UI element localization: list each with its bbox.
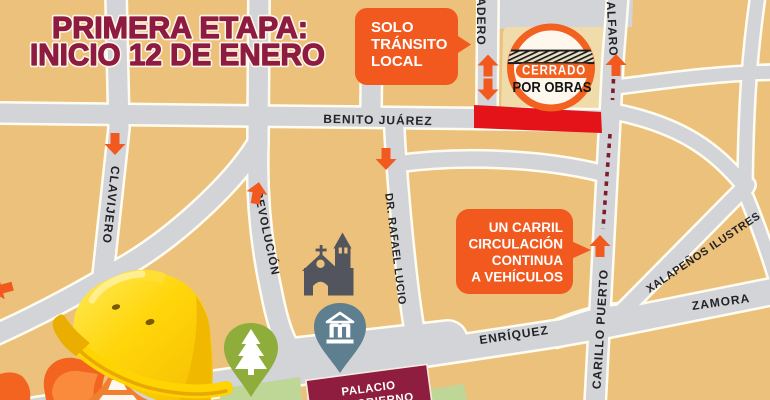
svg-text:LOCAL: LOCAL [371,53,423,70]
svg-text:CIRCULACIÓN: CIRCULACIÓN [469,237,564,252]
svg-text:A VEHÍCULOS: A VEHÍCULOS [471,270,563,285]
svg-text:MADERO: MADERO [474,0,488,46]
svg-text:TRÁNSITO: TRÁNSITO [371,36,448,53]
svg-text:ALFARO: ALFARO [604,1,621,57]
svg-text:SOLO: SOLO [371,19,414,36]
svg-text:POR OBRAS: POR OBRAS [513,79,592,96]
svg-text:BENITO JUÁREZ: BENITO JUÁREZ [323,111,433,128]
svg-text:CERRADO: CERRADO [522,63,586,78]
svg-text:CONTINUA: CONTINUA [492,253,563,268]
svg-text:UN CARRIL: UN CARRIL [489,220,563,235]
svg-text:INICIO 12 DE ENERO: INICIO 12 DE ENERO [30,37,325,72]
